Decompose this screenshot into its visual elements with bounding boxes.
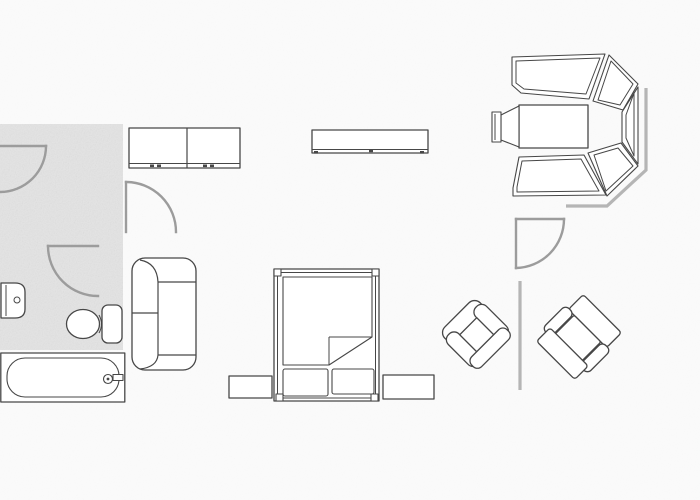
- sideboard-shelf: [312, 130, 428, 154]
- bed-pillow-left: [283, 369, 328, 396]
- bathtub: [1, 353, 125, 402]
- bay-bench-top: [512, 54, 605, 99]
- bed-pillow-right: [332, 369, 374, 394]
- nightstand-left: [229, 376, 272, 398]
- bay-table: [519, 105, 588, 148]
- double-bed: [274, 269, 379, 401]
- wash-basin: [1, 283, 25, 318]
- nightstand-right: [383, 375, 434, 399]
- two-seat-sofa: [132, 258, 196, 370]
- bay-side-chair: [492, 106, 519, 147]
- floor-plan-canvas: [0, 0, 700, 500]
- two-door-wardrobe: [129, 128, 240, 168]
